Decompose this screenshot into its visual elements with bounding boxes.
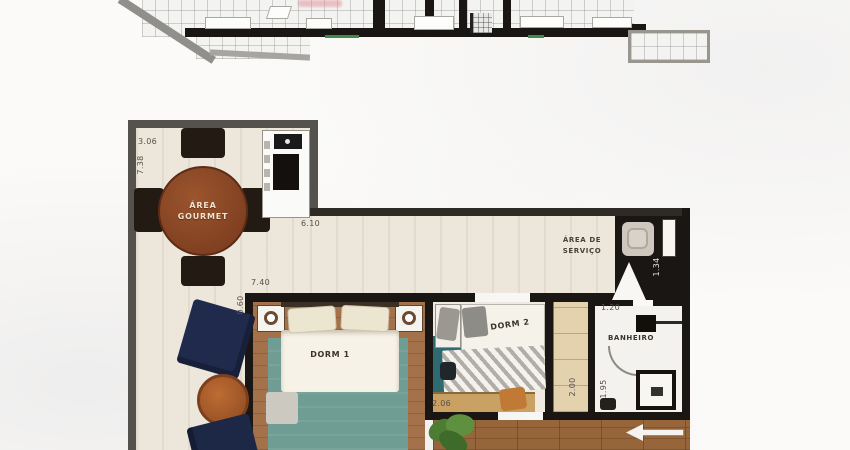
upper-counter	[414, 16, 454, 30]
kitchen-counter	[262, 130, 310, 218]
room-label-gourmet: ÁREA GOURMET	[160, 168, 246, 254]
dim-dorm2-width: 2.06	[432, 399, 460, 409]
upper-green-strip	[325, 35, 359, 38]
counter-knob	[264, 155, 270, 163]
floorplan-image: 1.34 ÁREA DE SERVIÇO ÁREA GOURMET	[0, 0, 850, 450]
gourmet-chair	[181, 256, 225, 286]
upper-red-annotation	[298, 0, 342, 7]
counter-knob	[264, 141, 270, 149]
sink-tap	[285, 139, 290, 144]
room-label-dorm1: DORM 1	[299, 350, 361, 359]
bathroom-sink	[636, 315, 656, 332]
servico-label-line2: SERVIÇO	[563, 247, 602, 255]
upper-wall-vertical	[373, 0, 385, 37]
wall-step	[310, 120, 318, 216]
room-label-banheiro: BANHEIRO	[602, 334, 660, 342]
bed-dorm2-duvet	[442, 345, 546, 394]
dim-dorm2-depth: 2.00	[568, 372, 578, 402]
shower-stall	[636, 370, 676, 410]
dim-gourmet-depth: 7.38	[136, 150, 146, 180]
upper-wall-vertical	[503, 0, 511, 30]
bed-pillow	[287, 305, 337, 333]
desk-chair	[499, 386, 528, 411]
upper-counter	[205, 17, 251, 29]
washer-icon	[622, 222, 654, 256]
sink-faucet	[656, 321, 682, 324]
rug-item-dorm2	[440, 362, 456, 380]
nightstand	[395, 305, 423, 332]
gourmet-chair	[181, 128, 225, 158]
counter-knob	[264, 169, 270, 177]
gourmet-label-line2: GOURMET	[178, 211, 229, 222]
lamp-icon	[264, 311, 278, 325]
wall-outer-left	[128, 120, 136, 450]
bed-dorm1	[281, 302, 399, 392]
shower-drain	[651, 387, 663, 396]
wall-outer-top	[128, 120, 318, 128]
dim-gourmet-width: 3.06	[138, 137, 164, 147]
wall-corridor-top	[543, 412, 690, 420]
bed-pillow	[340, 305, 389, 332]
upper-balcony	[628, 30, 710, 63]
kitchen-cooktop	[273, 154, 299, 190]
upper-fixture-wedge	[266, 6, 292, 19]
upper-counter	[520, 16, 564, 28]
wall-outer-right	[682, 208, 690, 420]
upper-wall-vertical	[459, 0, 467, 37]
dim-banheiro-depth: 1.95	[599, 374, 609, 404]
upper-counter	[592, 17, 632, 28]
wall-banheiro-left	[588, 300, 595, 420]
wall-banheiro-top	[653, 299, 682, 306]
wall-dorm2-right	[545, 293, 553, 420]
bed-duvet	[281, 330, 399, 392]
dim-dorm1-width: 7.40	[251, 278, 281, 288]
dim-dorm1-offset: 0.60	[236, 290, 246, 320]
lamp-icon	[402, 311, 416, 325]
dim-servico: 1.34	[652, 250, 664, 284]
upper-counter	[306, 18, 332, 29]
counter-knob	[264, 183, 270, 191]
wall-top-right	[310, 208, 690, 216]
entry-arrow-shaft	[642, 429, 684, 436]
servico-door-slot	[662, 219, 676, 257]
kitchen-sink	[274, 134, 302, 149]
dim-banheiro-width: 1.20	[601, 303, 629, 313]
servico-label-line1: ÁREA DE	[563, 236, 601, 244]
upper-shaft	[470, 13, 492, 33]
upper-green-strip	[528, 35, 544, 38]
gourmet-label-line1: ÁREA	[189, 200, 216, 211]
washer-door	[627, 228, 648, 249]
pouf	[266, 392, 298, 424]
wall-dorm-top	[245, 293, 475, 302]
dim-living-width: 6.10	[301, 219, 331, 229]
room-label-servico: ÁREA DE SERVIÇO	[552, 235, 612, 257]
gourmet-table: ÁREA GOURMET	[158, 166, 248, 256]
bed-pillow	[461, 306, 488, 338]
